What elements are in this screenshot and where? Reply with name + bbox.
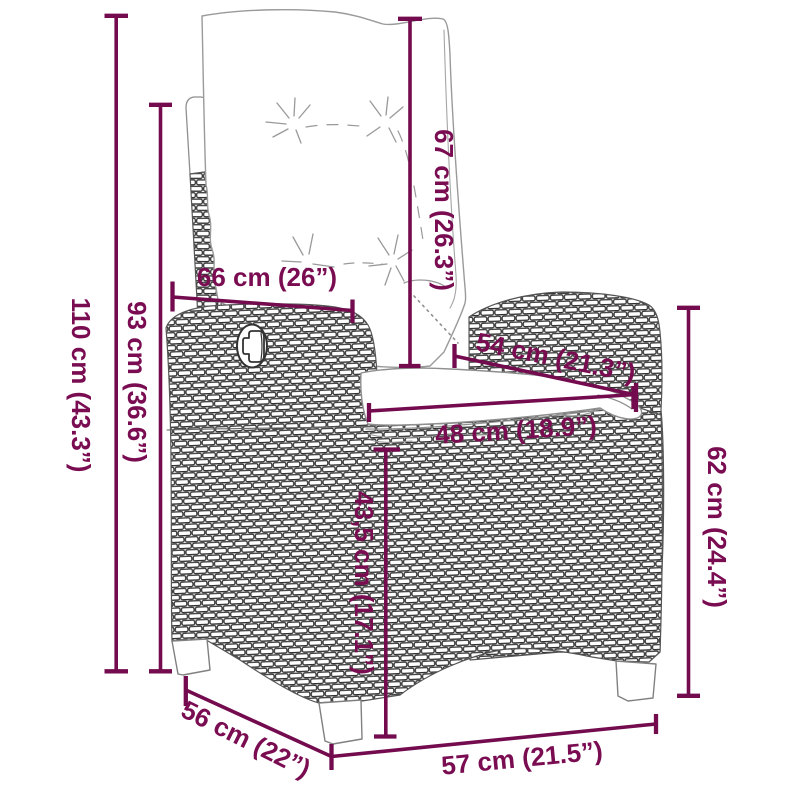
svg-text:66 cm (26”): 66 cm (26”) [197,262,337,292]
svg-text:62 cm (24.4”): 62 cm (24.4”) [702,446,732,608]
svg-text:67 cm (26.3”): 67 cm (26.3”) [429,129,459,291]
svg-text:110 cm (43.3”): 110 cm (43.3”) [66,298,96,473]
svg-text:43,5 cm (17.1”): 43,5 cm (17.1”) [349,491,379,675]
svg-text:93 cm (36.6”): 93 cm (36.6”) [122,301,152,463]
